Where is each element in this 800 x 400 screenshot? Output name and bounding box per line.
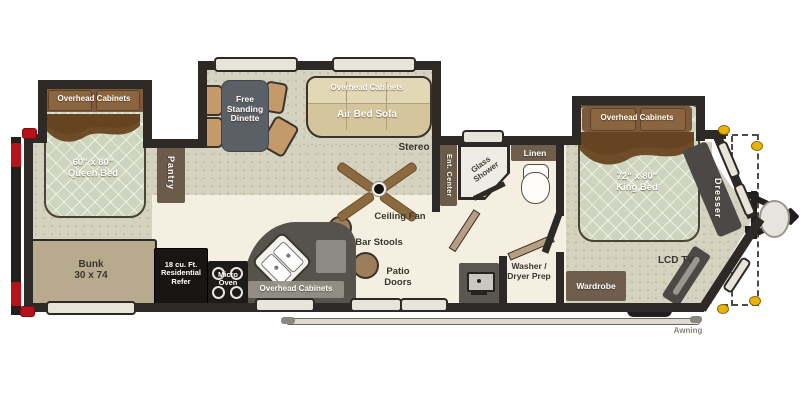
- pantry-label: Pantry: [166, 156, 176, 190]
- awning-cap-left: [281, 317, 295, 324]
- propane-tank: [759, 200, 790, 238]
- wall-rear: [24, 134, 33, 314]
- marker-light-rear-top: [22, 128, 37, 139]
- patio-door-right: [400, 298, 448, 312]
- wall-bath-right: [556, 142, 564, 216]
- tail-light-bottom: [11, 282, 21, 306]
- stereo-label: Stereo: [390, 142, 438, 153]
- patio-door-left: [350, 298, 402, 312]
- linen-cabinet: Linen: [511, 144, 559, 161]
- queen-bed-blanket: [46, 114, 140, 158]
- pinbox-dash-top: [722, 134, 758, 136]
- pantry: Pantry: [157, 143, 185, 203]
- wall-queen-slide-right: [143, 80, 152, 148]
- king-overhead-cabinets: Overhead Cabinets: [582, 106, 692, 132]
- clearance-light-2: [751, 141, 763, 151]
- queen-overhead-cabinets-label: Overhead Cabinets: [42, 95, 146, 104]
- stove-burner: [212, 286, 225, 299]
- air-bed-sofa: Overhead Cabinets Air Bed Sofa: [306, 76, 432, 138]
- kitchen-overhead-band: Overhead Cabinets: [248, 281, 344, 298]
- king-bed-label: 72" x 80" King Bed: [580, 172, 694, 193]
- wall-queen-slide-top: [38, 80, 152, 89]
- window-dinette-1: [214, 57, 298, 72]
- ceiling-fan-label: Ceiling Fan: [362, 212, 438, 223]
- clearance-light-3: [717, 304, 729, 314]
- micro-oven-label: Micro Oven: [208, 271, 248, 288]
- queen-bed: 60" x 80" Queen Bed: [44, 104, 146, 218]
- queen-bed-label: 60" x 80" Queen Bed: [46, 158, 140, 179]
- wall-dinette-slide-left: [198, 61, 207, 147]
- window-kitchen: [255, 298, 315, 312]
- wall-queen-slide-left: [38, 80, 47, 143]
- tail-light-top: [11, 143, 21, 167]
- bar-stools-label: Bar Stools: [348, 238, 410, 249]
- window-dinette-2: [332, 57, 416, 72]
- fan-blade: [336, 161, 376, 193]
- fan-hub: [372, 182, 386, 196]
- toilet: [520, 164, 550, 204]
- utility-tv-base: [471, 292, 487, 295]
- rv-floor-plan: 60" x 80" Queen Bed Overhead Cabinets Bu…: [0, 0, 800, 400]
- wall-dinette-slide-right: [432, 61, 441, 145]
- wardrobe-label: Wardrobe: [576, 281, 615, 291]
- stove-burner: [230, 286, 243, 299]
- stove-micro-oven: Micro Oven: [208, 261, 248, 304]
- clearance-light-1: [718, 125, 730, 135]
- washer-dryer-label: Washer / Dryer Prep: [497, 262, 561, 281]
- queen-overhead-cabinets: Overhead Cabinets: [42, 88, 146, 112]
- king-overhead-cabinets-label: Overhead Cabinets: [582, 114, 692, 123]
- linen-label: Linen: [524, 148, 547, 158]
- refrigerator: 18 cu. Ft. Residential Refer: [154, 248, 208, 306]
- refrigerator-label: 18 cu. Ft. Residential Refer: [155, 261, 207, 286]
- marker-light-rear-bottom: [20, 306, 35, 317]
- kitchen-overhead-cabinets-label: Overhead Cabinets: [248, 285, 344, 294]
- dinette-label: Free Standing Dinette: [222, 95, 268, 124]
- utility-tv-dot: [477, 279, 481, 283]
- utility-tv-screen: [467, 272, 495, 292]
- bunk: Bunk 30 x 74: [30, 239, 157, 309]
- ent-center-label: Ent. Center: [445, 154, 452, 197]
- exterior-utility-tv: [459, 263, 499, 304]
- dinette-table: Free Standing Dinette: [221, 80, 269, 152]
- lcd-tv-label: LCD TV: [648, 255, 704, 266]
- awning-cap-right: [690, 316, 702, 323]
- awning-label: Awning: [666, 327, 710, 336]
- awning-rail: [286, 318, 700, 325]
- sofa-label: Air Bed Sofa: [308, 109, 426, 120]
- dresser-label: Dresser: [707, 162, 723, 234]
- clearance-light-4: [749, 296, 761, 306]
- window-bath-top: [462, 130, 504, 144]
- counter-appliance: [316, 240, 346, 273]
- window-bunk: [46, 301, 136, 315]
- wall-king-slide-top: [572, 96, 705, 105]
- toilet-bowl: [521, 172, 550, 204]
- bunk-label: Bunk 30 x 74: [32, 259, 150, 281]
- wardrobe: Wardrobe: [566, 271, 626, 301]
- ent-center: Ent. Center: [440, 144, 457, 206]
- patio-doors-label: Patio Doors: [372, 267, 424, 288]
- sofa-overhead-cabinets-label: Overhead Cabinets: [308, 84, 426, 93]
